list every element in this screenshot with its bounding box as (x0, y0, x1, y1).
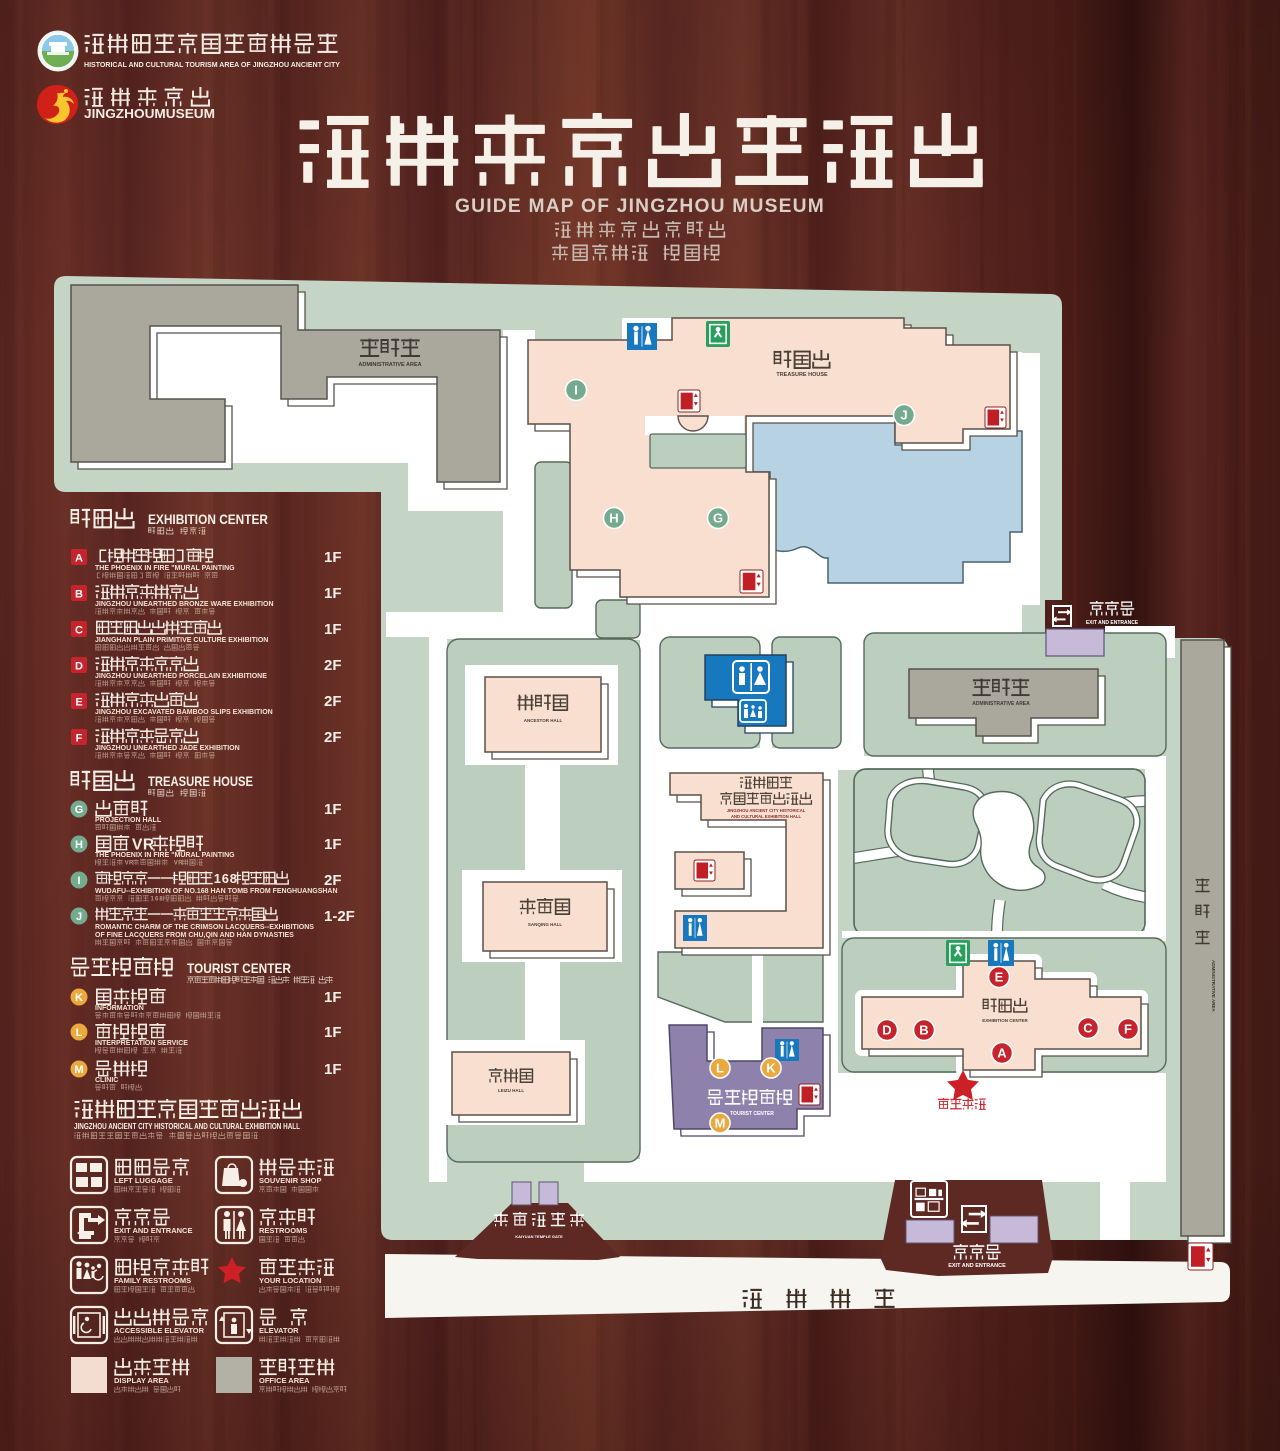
svg-text:1F: 1F (324, 989, 342, 1006)
svg-text:C: C (1083, 1021, 1093, 1036)
svg-text:ELEVATOR: ELEVATOR (259, 1326, 299, 1335)
svg-text:J: J (76, 911, 82, 923)
svg-text:LEFT LUGGAGE: LEFT LUGGAGE (114, 1176, 173, 1185)
svg-text:JINGZHOU UNEARTHED JADE EXHIBI: JINGZHOU UNEARTHED JADE EXHIBITION (95, 745, 240, 752)
svg-text:YOUR LOCATION: YOUR LOCATION (259, 1276, 321, 1285)
svg-text:EXIT AND ENTRANCE: EXIT AND ENTRANCE (114, 1226, 192, 1235)
svg-text:A: A (75, 553, 83, 565)
svg-text:EXHIBITION CENTER: EXHIBITION CENTER (148, 511, 268, 527)
svg-text:JINGZHOU ANCIENT CITY HISTORIC: JINGZHOU ANCIENT CITY HISTORICAL (727, 808, 806, 813)
svg-text:G: G (75, 804, 84, 816)
svg-text:2F: 2F (324, 657, 342, 674)
svg-text:ADMINISTRATIVE AREA: ADMINISTRATIVE AREA (1211, 960, 1216, 1013)
svg-text:HISTORICAL AND CULTURAL TOURIS: HISTORICAL AND CULTURAL TOURISM AREA OF … (84, 60, 340, 69)
svg-text:2F: 2F (324, 729, 342, 746)
svg-text:LEIZU HALL: LEIZU HALL (498, 1088, 524, 1093)
svg-text:JINGZHOU EXCAVATED BAMBOO SLIP: JINGZHOU EXCAVATED BAMBOO SLIPS EXHIBITI… (95, 709, 273, 716)
svg-text:2F: 2F (324, 693, 342, 710)
svg-text:E: E (995, 970, 1004, 985)
svg-text:E: E (75, 697, 82, 709)
svg-text:TOURIST CENTER: TOURIST CENTER (187, 960, 291, 976)
svg-text:TREASURE HOUSE: TREASURE HOUSE (776, 372, 828, 378)
svg-text:2F: 2F (324, 872, 342, 889)
svg-text:WUDAFU--EXHIBITION OF NO.168 H: WUDAFU--EXHIBITION OF NO.168 HAN TOMB FR… (95, 888, 338, 895)
svg-text:C: C (75, 625, 83, 637)
svg-text:AND CULTURAL EXHIBITION HALL: AND CULTURAL EXHIBITION HALL (731, 814, 802, 819)
svg-text:B: B (75, 589, 83, 601)
svg-text:EXIT AND ENTRANCE: EXIT AND ENTRANCE (1086, 620, 1139, 626)
svg-text:1F: 1F (324, 836, 342, 853)
svg-text:ADMINISTRATIVE AREA: ADMINISTRATIVE AREA (972, 701, 1030, 707)
svg-text:I: I (574, 383, 578, 398)
svg-text:1-2F: 1-2F (324, 908, 355, 925)
svg-text:DISPLAY AREA: DISPLAY AREA (114, 1376, 169, 1385)
svg-text:A: A (997, 1046, 1007, 1061)
svg-text:INTERPRETATION SERVICE: INTERPRETATION SERVICE (95, 1040, 188, 1047)
svg-text:6: 6 (222, 871, 229, 886)
svg-text:EXIT AND ENTRANCE: EXIT AND ENTRANCE (948, 1263, 1006, 1269)
svg-text:K: K (75, 992, 83, 1004)
svg-text:GUIDE MAP OF JINGZHOU MUSEUM: GUIDE MAP OF JINGZHOU MUSEUM (455, 196, 825, 217)
svg-text:JIANGHAN PLAIN PRIMITIVE CULTU: JIANGHAN PLAIN PRIMITIVE CULTURE EXHIBIT… (95, 637, 268, 644)
svg-text:F: F (76, 733, 83, 745)
svg-text:THE PHOENIX IN FIRE "MURAL PAI: THE PHOENIX IN FIRE "MURAL PAINTING (95, 852, 235, 859)
svg-text:D: D (882, 1023, 891, 1038)
svg-text:I: I (77, 875, 80, 887)
svg-text:THE PHOENIX IN FIRE "MURAL PAI: THE PHOENIX IN FIRE "MURAL PAINTING (95, 565, 235, 572)
svg-text:SANQING HALL: SANQING HALL (528, 922, 563, 927)
svg-text:1F: 1F (324, 801, 342, 818)
svg-text:ADMINISTRATIVE AREA: ADMINISTRATIVE AREA (358, 362, 421, 368)
svg-text:H: H (75, 839, 83, 851)
svg-text:JINGZHOU UNEARTHED PORCELAIN E: JINGZHOU UNEARTHED PORCELAIN EXHIBITIONE (95, 673, 267, 680)
svg-text:M: M (74, 1064, 83, 1076)
svg-text:G: G (713, 511, 723, 526)
svg-text:TREASURE HOUSE: TREASURE HOUSE (148, 773, 253, 789)
svg-text:1F: 1F (324, 621, 342, 638)
svg-text:RESTROOMS: RESTROOMS (259, 1226, 307, 1235)
svg-text:R: R (129, 861, 134, 867)
svg-text:PROJECTION HALL: PROJECTION HALL (95, 817, 162, 824)
svg-text:ACCESSIBLE ELEVATOR: ACCESSIBLE ELEVATOR (114, 1326, 205, 1335)
svg-text:M: M (715, 1116, 726, 1131)
svg-text:V: V (125, 861, 129, 867)
svg-text:KAIYUAN TEMPLE GATE: KAIYUAN TEMPLE GATE (515, 1234, 563, 1239)
svg-text:ROMANTIC CHARM OF THE CRIMSON: ROMANTIC CHARM OF THE CRIMSON LACQUERS--… (95, 924, 314, 931)
svg-text:H: H (609, 511, 618, 526)
svg-text:JINGZHOU ANCIENT CITY HISTORIC: JINGZHOU ANCIENT CITY HISTORICAL AND CUL… (74, 1122, 300, 1131)
svg-text:ANCESTOR HALL: ANCESTOR HALL (524, 718, 563, 723)
svg-text:V: V (174, 861, 178, 867)
svg-text:1: 1 (214, 871, 221, 886)
svg-text:CLINIC: CLINIC (95, 1077, 118, 1084)
svg-text:8: 8 (230, 871, 237, 886)
svg-text:OF FINE LACQUERS FROM CHU,QIN: OF FINE LACQUERS FROM CHU,QIN AND HAN DY… (95, 932, 294, 939)
svg-text:D: D (75, 661, 83, 673)
svg-text:TOURIST CENTER: TOURIST CENTER (730, 1111, 774, 1117)
svg-text:JINGZHOU UNEARTHED BRONZE WARE: JINGZHOU UNEARTHED BRONZE WARE EXHIBITIO… (95, 601, 274, 608)
svg-text:OFFICE AREA: OFFICE AREA (259, 1376, 310, 1385)
svg-text:1F: 1F (324, 1061, 342, 1078)
svg-text:JINGZHOUMUSEUM: JINGZHOUMUSEUM (84, 107, 215, 121)
svg-text:1F: 1F (324, 1024, 342, 1041)
svg-text:1F: 1F (324, 549, 342, 566)
svg-text:L: L (76, 1027, 83, 1039)
svg-text:INFORMATION: INFORMATION (95, 1005, 144, 1012)
svg-text:L: L (716, 1061, 724, 1076)
svg-text:J: J (900, 408, 907, 423)
svg-text:F: F (1124, 1022, 1132, 1037)
svg-text:EXHIBITION CENTER: EXHIBITION CENTER (982, 1018, 1028, 1023)
svg-text:K: K (766, 1061, 776, 1076)
svg-text:B: B (919, 1023, 928, 1038)
svg-text:1F: 1F (324, 585, 342, 602)
svg-text:SOUVENIR SHOP: SOUVENIR SHOP (259, 1176, 322, 1185)
svg-text:FAMILY RESTROOMS: FAMILY RESTROOMS (114, 1276, 191, 1285)
